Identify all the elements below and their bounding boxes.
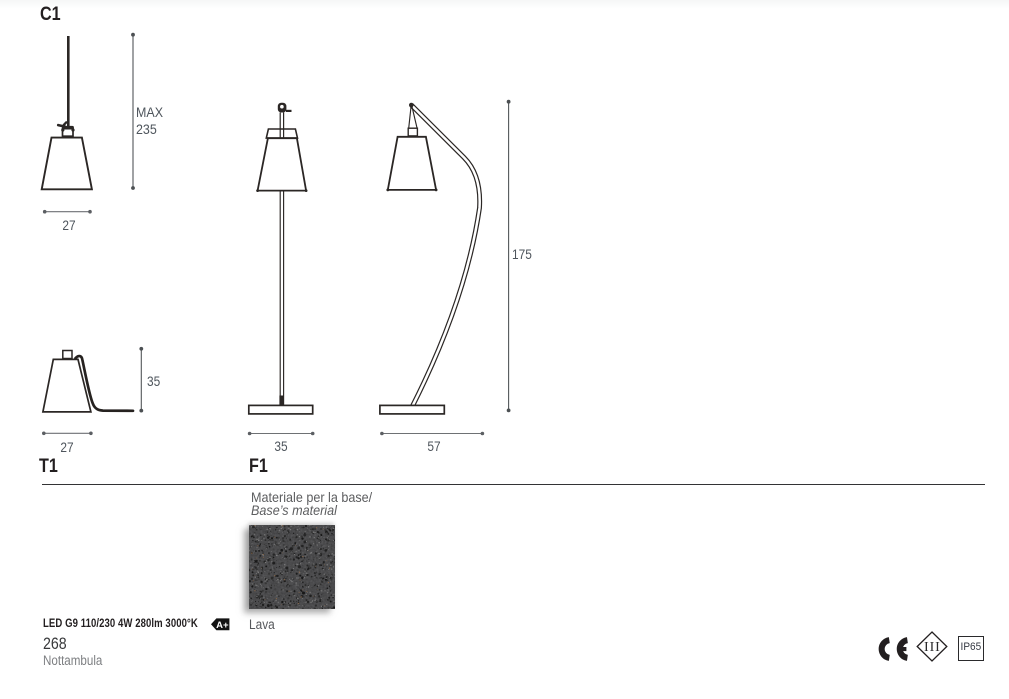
- svg-text:III: III: [924, 640, 941, 655]
- svg-text:A+: A+: [216, 620, 229, 631]
